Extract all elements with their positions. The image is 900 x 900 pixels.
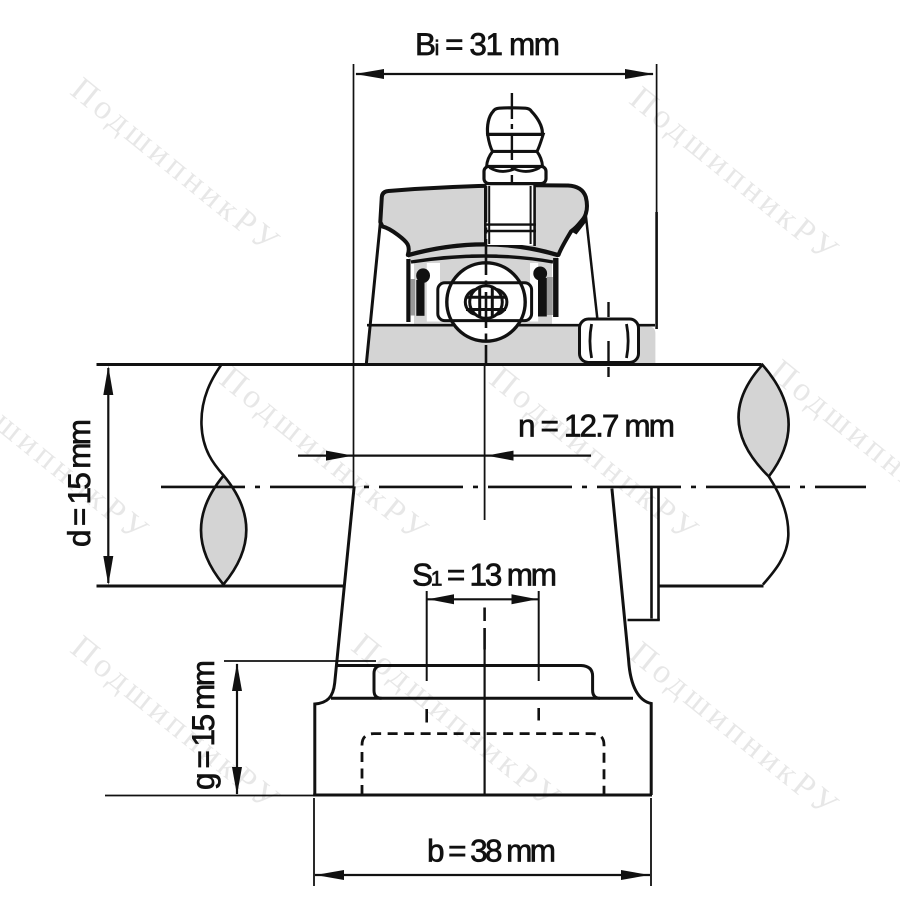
svg-text:b = 38 mm: b = 38 mm [427, 833, 556, 869]
